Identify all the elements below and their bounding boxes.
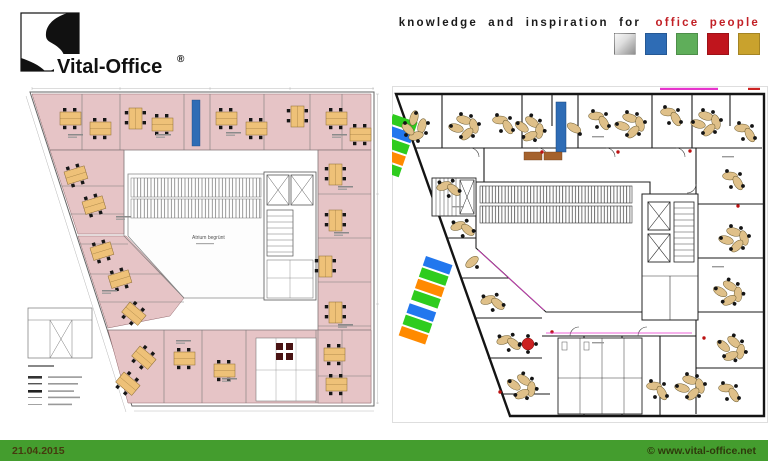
blue-cabinet [556, 102, 566, 152]
staircase [267, 210, 293, 256]
right-floor-plan-furnished [392, 86, 768, 424]
swatch-red [707, 33, 729, 55]
skylight-hatch [131, 178, 261, 197]
swatch-gold [738, 33, 760, 55]
swatch-green [676, 33, 698, 55]
legend [28, 376, 82, 405]
header-tagline: knowledge and inspiration for office peo… [399, 17, 760, 29]
key-plan [28, 308, 92, 367]
magenta-annotation [660, 88, 718, 90]
elevator-core [642, 194, 698, 320]
blue-cabinet [192, 100, 200, 146]
vital-office-presentation-page: { "window": {"width": 768, "height": 461… [0, 0, 768, 461]
footer-website-link[interactable]: © www.vital-office.net [647, 445, 756, 457]
tagline-accent: office people [655, 17, 760, 29]
red-annotation [748, 88, 760, 90]
logo-graphic: Vital-Office ® [20, 12, 230, 80]
elevator-core [264, 172, 316, 300]
tagline-text: knowledge and inspiration for [399, 17, 641, 29]
atrium-label: Atrium begrünt [192, 235, 225, 241]
colored-bar-stack-bottom [399, 256, 453, 345]
swatch-silver [614, 33, 636, 55]
left-floor-plan-cad: Atrium begrünt [24, 86, 380, 424]
footer-date: 21.04.2015 [12, 445, 65, 457]
logo-registered-mark: ® [177, 54, 185, 65]
skylight-hatch [480, 186, 632, 203]
sanitary-core [558, 338, 642, 414]
footer-bar: 21.04.2015 © www.vital-office.net [0, 440, 768, 461]
swatch-blue [645, 33, 667, 55]
brand-color-swatches [614, 33, 760, 55]
vital-office-logo: Vital-Office ® [20, 12, 230, 85]
logo-brand-text: Vital-Office [57, 56, 162, 78]
